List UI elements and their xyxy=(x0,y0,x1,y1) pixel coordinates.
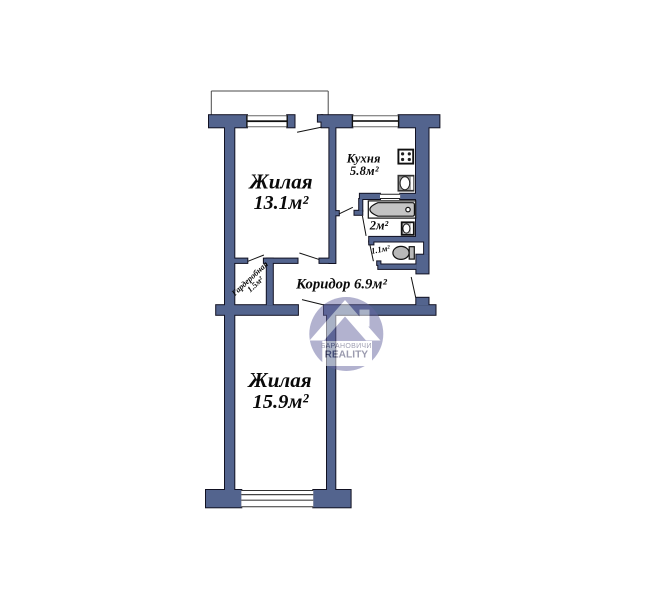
svg-text:Коридор 6.9м²: Коридор 6.9м² xyxy=(295,277,387,293)
svg-text:2м²: 2м² xyxy=(369,219,389,233)
svg-text:Жилая: Жилая xyxy=(246,368,311,392)
svg-text:5.8м²: 5.8м² xyxy=(350,164,379,178)
svg-text:15.9м²: 15.9м² xyxy=(252,391,309,413)
svg-text:REALITY: REALITY xyxy=(325,349,369,360)
svg-text:13.1м²: 13.1м² xyxy=(254,192,310,214)
svg-text:Жилая: Жилая xyxy=(247,170,312,194)
